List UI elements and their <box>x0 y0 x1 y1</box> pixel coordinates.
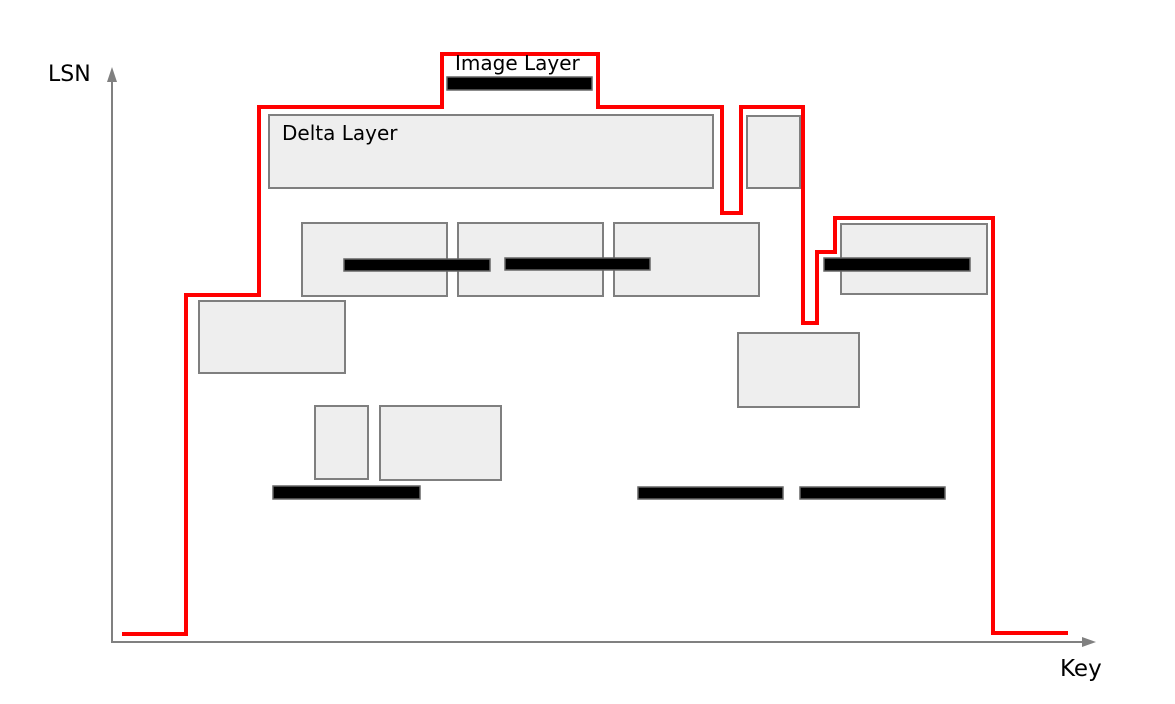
layer-map-diagram: LSN Key Image Layer Delta Layer <box>0 0 1175 704</box>
image-layer-label: Image Layer <box>455 53 580 73</box>
y-axis-arrowhead-icon <box>107 67 117 82</box>
delta-layer-rect <box>380 406 501 480</box>
delta-layer-label: Delta Layer <box>282 123 397 143</box>
x-axis-arrowhead-icon <box>1082 637 1096 647</box>
image-layer-bar <box>447 77 592 90</box>
image-layer-bar <box>638 487 783 499</box>
delta-layer-rect <box>738 333 859 407</box>
image-layer-bar <box>824 258 970 271</box>
delta-layer-rect <box>315 406 368 479</box>
image-layer-bar <box>344 259 490 271</box>
y-axis-label: LSN <box>48 64 91 86</box>
image-layer-bar <box>273 486 420 499</box>
layer-map-canvas <box>0 0 1175 704</box>
x-axis-label: Key <box>1060 658 1102 681</box>
image-layer-bar <box>505 258 650 270</box>
delta-layer-rect <box>747 116 800 188</box>
image-layer-bar <box>800 487 945 499</box>
delta-layer-rect <box>199 301 345 373</box>
